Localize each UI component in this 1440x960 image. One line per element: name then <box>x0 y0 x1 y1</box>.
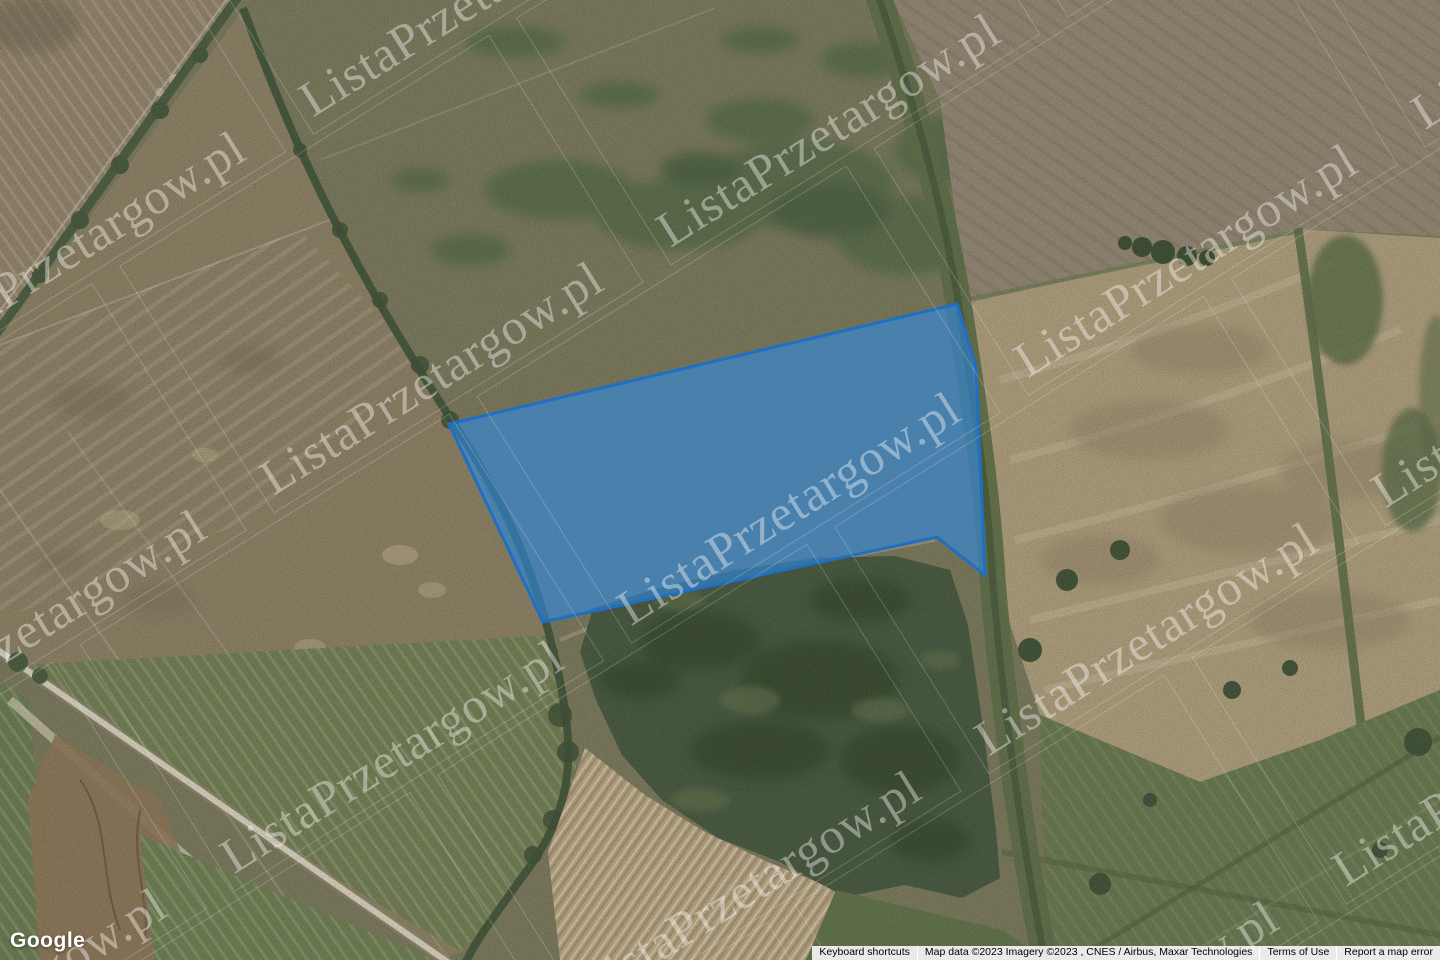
map-data-credit: Map data ©2023 Imagery ©2023 , CNES / Ai… <box>917 946 1260 960</box>
keyboard-shortcuts-button[interactable]: Keyboard shortcuts <box>812 946 916 960</box>
map-viewport[interactable]: ListaPrzetargow.plListaPrzetargow.plList… <box>0 0 1440 960</box>
terms-of-use-link[interactable]: Terms of Use <box>1259 946 1336 960</box>
satellite-terrain <box>0 0 1440 960</box>
google-logo[interactable]: Google <box>10 929 85 953</box>
report-map-error-link[interactable]: Report a map error <box>1336 946 1440 960</box>
attribution-bar: Keyboard shortcuts Map data ©2023 Imager… <box>812 946 1440 960</box>
